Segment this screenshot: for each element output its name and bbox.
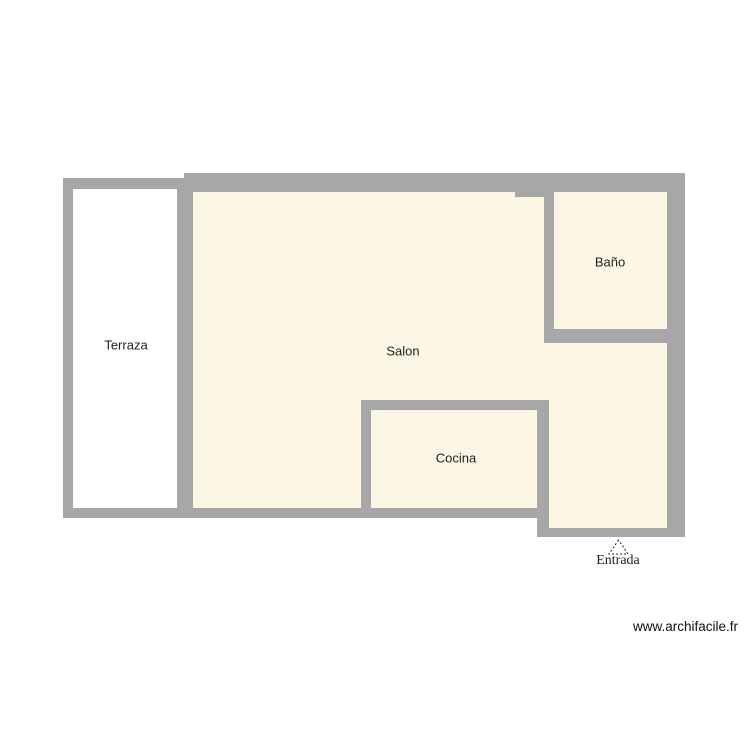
wall-cocina-top: [361, 400, 549, 410]
wall-cocina-right: [537, 400, 549, 537]
entrance-label: Entrada: [596, 553, 640, 569]
wall-right-outer: [667, 173, 685, 537]
wall-top-main: [184, 173, 685, 192]
wall-terraza-salon-divider: [177, 178, 193, 518]
wall-top-terraza: [63, 178, 184, 189]
wall-bano-left: [544, 192, 554, 343]
wall-bottom-main: [63, 508, 549, 518]
room-label-salon: Salon: [386, 344, 419, 359]
room-label-terraza: Terraza: [104, 338, 147, 353]
watermark-text: www.archifacile.fr: [633, 619, 738, 634]
room-salon-entry-nook: [544, 343, 667, 528]
wall-entry-bottom: [537, 528, 685, 537]
room-label-bano: Baño: [595, 255, 625, 270]
floor-plan-canvas: Terraza Salon Baño Cocina Entrada www.ar…: [0, 0, 750, 750]
room-label-cocina: Cocina: [436, 451, 476, 466]
wall-bano-bottom: [544, 329, 685, 343]
wall-cocina-left: [361, 400, 371, 518]
wall-top-notch: [515, 192, 544, 197]
wall-left-outer: [63, 178, 73, 518]
